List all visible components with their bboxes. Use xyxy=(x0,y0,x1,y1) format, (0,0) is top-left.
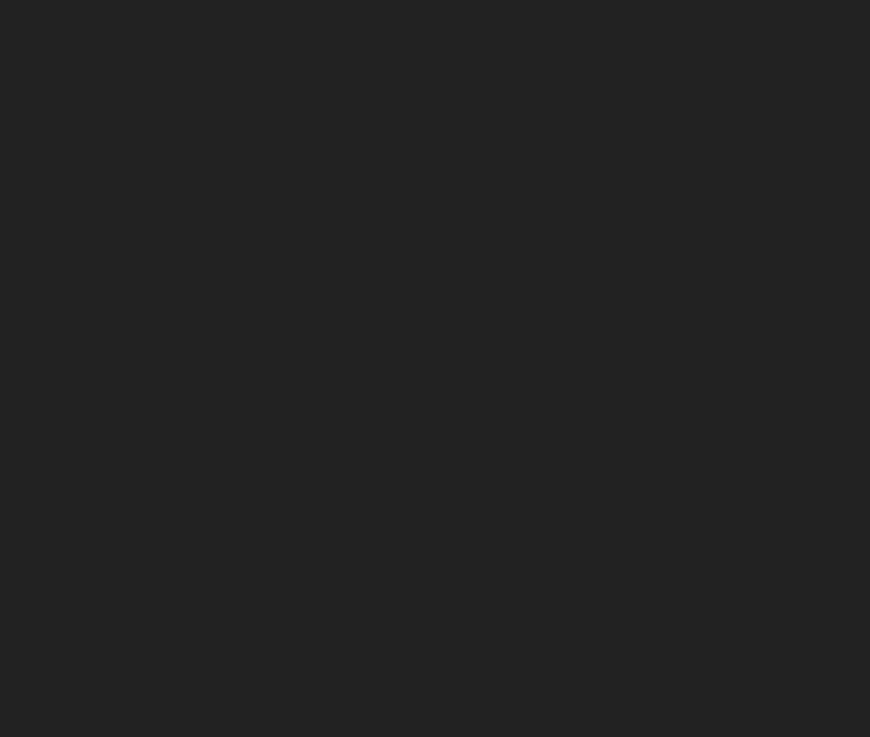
aerial-site-render xyxy=(0,0,870,737)
